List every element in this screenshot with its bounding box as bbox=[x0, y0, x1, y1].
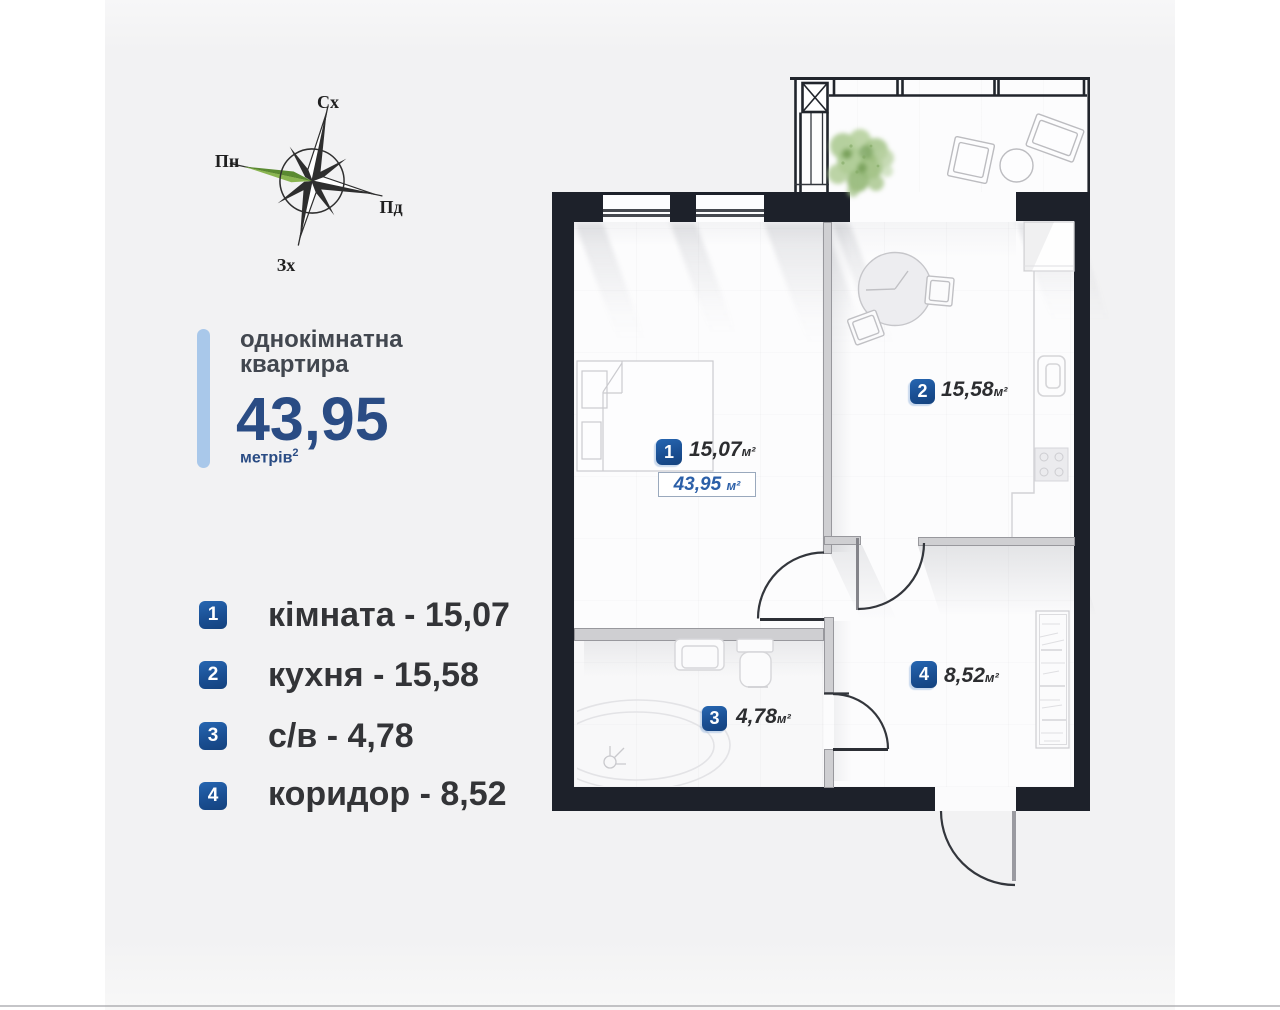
svg-text:Сх: Сх bbox=[317, 92, 339, 112]
svg-text:Пн: Пн bbox=[215, 151, 239, 171]
svg-text:Зх: Зх bbox=[277, 255, 296, 275]
svg-text:Пд: Пд bbox=[379, 197, 402, 217]
